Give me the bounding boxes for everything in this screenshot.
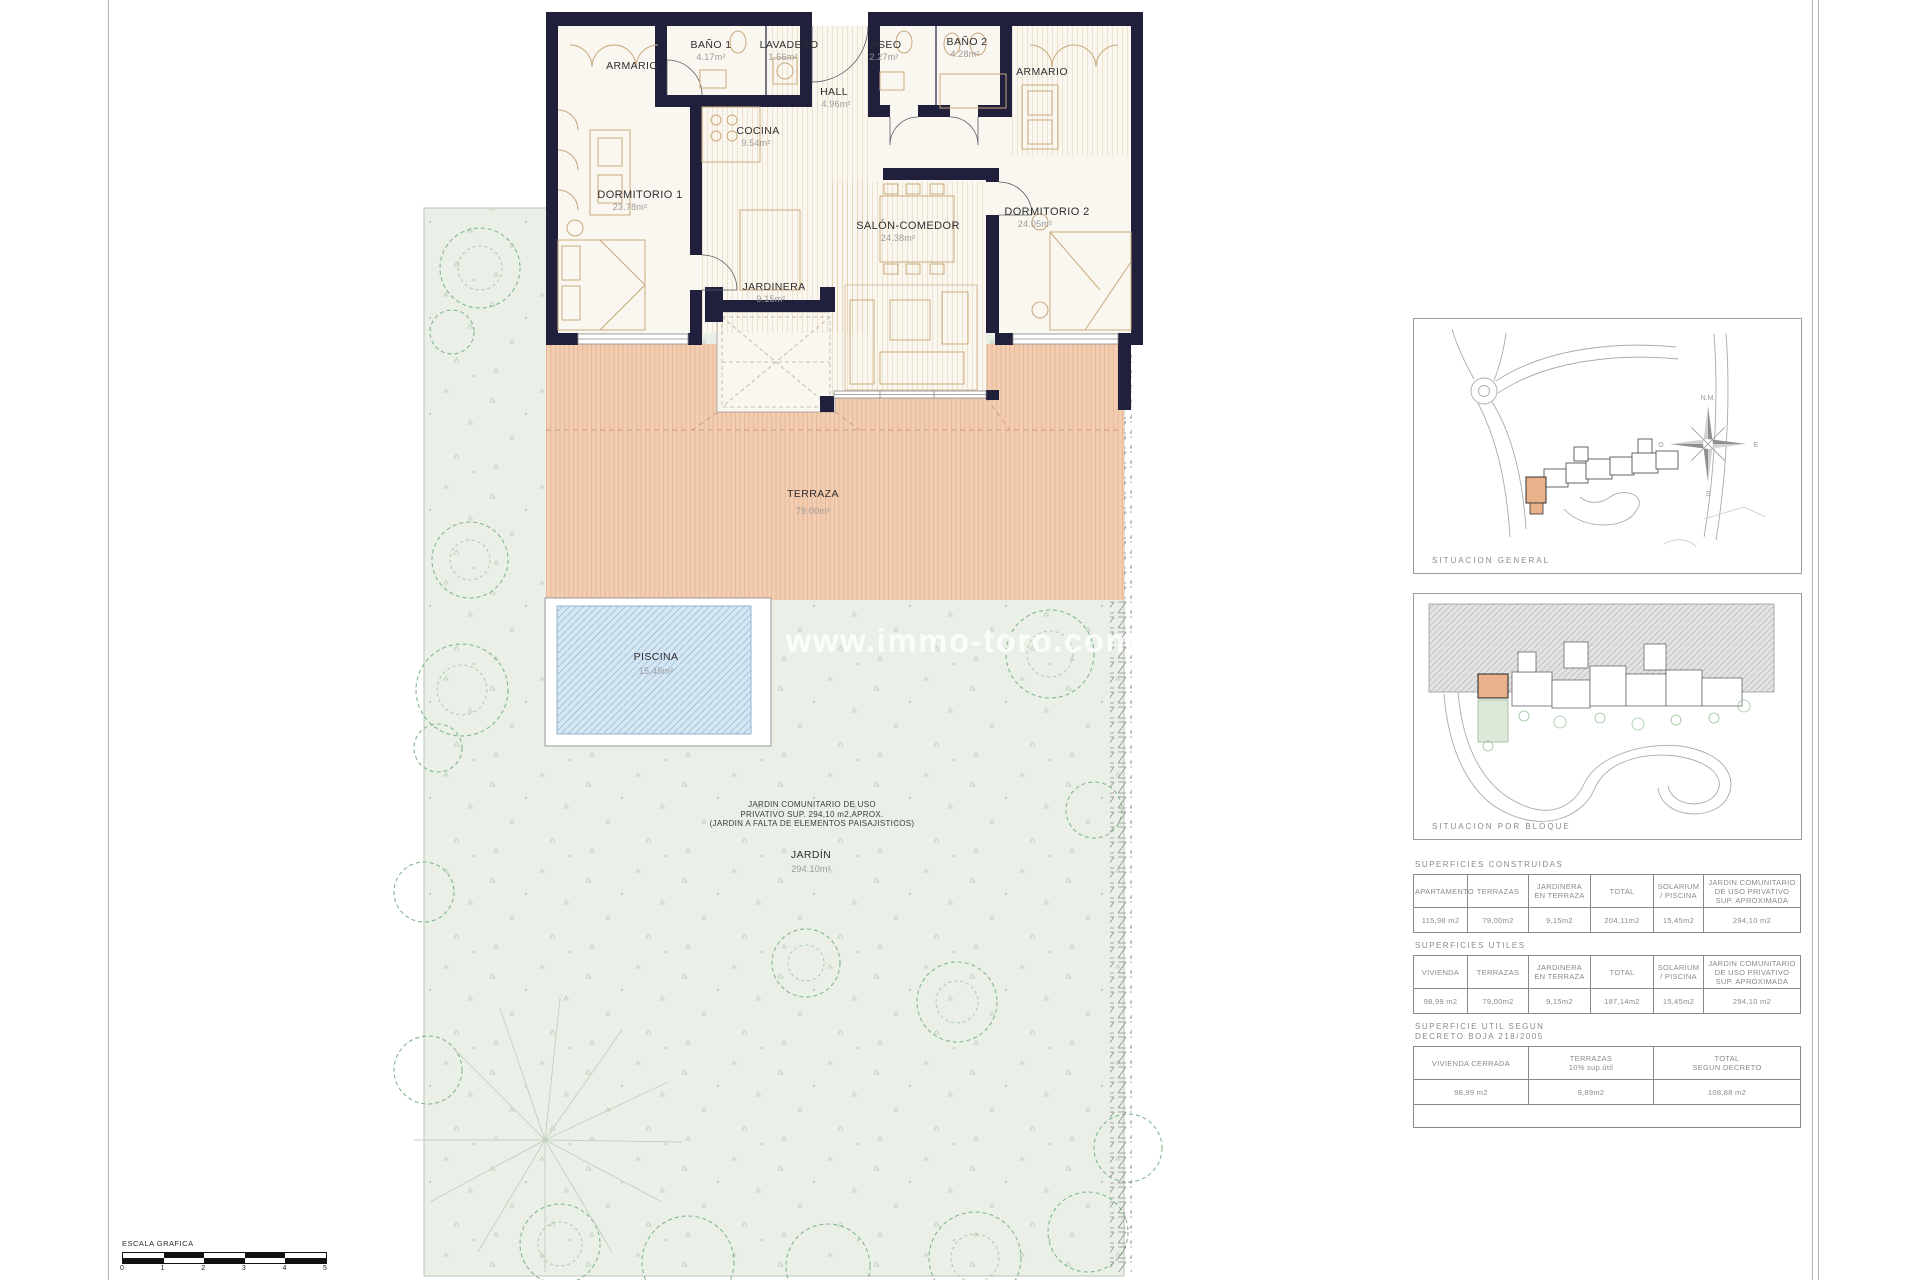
map-general-caption: SITUACION GENERAL (1432, 556, 1550, 565)
map-block-caption: SITUACION POR BLOQUE (1432, 822, 1571, 831)
compass-rose-icon (1670, 406, 1746, 482)
map-situacion-por-bloque: SITUACION POR BLOQUE (1413, 593, 1802, 840)
table-superficies-utiles: VIVIENDA TERRAZAS JARDINERA EN TERRAZA T… (1413, 955, 1801, 1014)
table1-header: JARDIN COMUNITARIO DE USO PRIVATIVO SUP.… (1704, 875, 1801, 908)
scale-tick: 2 (201, 1265, 205, 1272)
map-situacion-general: N.M. E S O SITUACION GENERAL (1413, 318, 1802, 574)
room-label-dormitorio1: DORMITORIO 1 (597, 189, 682, 201)
table2-header: SOLARIUM / PISCINA (1654, 956, 1704, 989)
graphic-scale: ESCALA GRAFICA 0 1 2 3 4 5 (122, 1252, 327, 1264)
table3-header: TOTAL SEGUN DECRETO (1654, 1047, 1801, 1080)
table1-header: JARDINERA EN TERRAZA (1529, 875, 1591, 908)
table2-header: JARDINERA EN TERRAZA (1529, 956, 1591, 989)
table1-header: APARTAMENTO (1414, 875, 1468, 908)
table2-header: TOTAL (1591, 956, 1654, 989)
surface-tables: SUPERFICIES CONSTRUIDAS APARTAMENTO TERR… (1413, 852, 1800, 1128)
garden-note-line2: PRIVATIVO SUP. 294,10 m2,APROX. (710, 810, 915, 820)
highlighted-unit (1526, 477, 1546, 514)
table2-value: 98,99 m2 (1414, 989, 1468, 1014)
room-area-terraza: 79.00m² (796, 506, 830, 516)
garden-note-line3: (JARDIN A FALTA DE ELEMENTOS PAISAJISTIC… (710, 819, 915, 829)
room-label-jardin: JARDÍN (791, 849, 831, 861)
room-area-jardinera: 9.15m² (756, 294, 785, 304)
highlighted-unit (1478, 674, 1508, 698)
room-area-dormitorio2: 24.05m² (1018, 219, 1052, 229)
table3-value: 108,88 m2 (1654, 1080, 1801, 1105)
room-label-lavadero: LAVADERO (760, 39, 819, 51)
table1-header: SOLARIUM / PISCINA (1654, 875, 1704, 908)
table1-value: 9,15m2 (1529, 908, 1591, 933)
compass-south-label: S (1706, 491, 1711, 498)
scale-tick: 0 (120, 1265, 124, 1272)
table2-value: 187,14m2 (1591, 989, 1654, 1014)
table-superficies-construidas: APARTAMENTO TERRAZAS JARDINERA EN TERRAZ… (1413, 874, 1801, 933)
table3-value: 9,89m2 (1529, 1080, 1654, 1105)
scale-tick: 4 (282, 1265, 286, 1272)
compass-east-label: E (1754, 442, 1759, 449)
table1-value: 115,98 m2 (1414, 908, 1468, 933)
scale-tick: 1 (161, 1265, 165, 1272)
room-label-armario-right: ARMARIO (1016, 66, 1068, 78)
table1-header: TOTAL (1591, 875, 1654, 908)
situacion-general-drawing: N.M. E S O (1414, 319, 1801, 573)
scale-bar-icon (122, 1252, 327, 1264)
table1-value: 204,11m2 (1591, 908, 1654, 933)
table2-title: SUPERFICIES UTILES (1415, 941, 1800, 951)
table2-header: TERRAZAS (1468, 956, 1529, 989)
room-area-bano2: 4.28m² (950, 49, 979, 59)
room-label-aseo: ASEO (871, 39, 902, 51)
table1-value: 15,45m2 (1654, 908, 1704, 933)
highlighted-garden (1478, 700, 1508, 742)
room-label-armario-left: ARMARIO (606, 60, 658, 72)
room-label-bano2: BAÑO 2 (947, 36, 988, 48)
table2-header: VIVIENDA (1414, 956, 1468, 989)
table2-value: 294,10 m2 (1704, 989, 1801, 1014)
table2-value: 79,00m2 (1468, 989, 1529, 1014)
situacion-bloque-drawing (1414, 594, 1801, 839)
room-area-aseo: 2.27m² (869, 52, 898, 62)
table3-empty-row (1414, 1105, 1801, 1128)
scale-caption: ESCALA GRAFICA (122, 1239, 194, 1248)
drawing-sheet: ARMARIO BAÑO 1 4.17m² LAVADERO 1.56m² AS… (0, 0, 1920, 1280)
table1-value: 294,10 m2 (1704, 908, 1801, 933)
table3-title: SUPERFICIE UTIL SEGUN DECRETO BOJA 218/2… (1415, 1022, 1800, 1042)
room-label-salon: SALÓN-COMEDOR (856, 220, 960, 232)
room-label-piscina: PISCINA (634, 651, 679, 663)
room-label-terraza: TERRAZA (787, 488, 839, 500)
table2-header: JARDIN COMUNITARIO DE USO PRIVATIVO SUP.… (1704, 956, 1801, 989)
room-label-jardinera: JARDINERA (742, 281, 805, 293)
watermark: www.immo-toro.com (786, 622, 1137, 660)
room-area-bano1: 4.17m² (696, 52, 725, 62)
table-superficie-util-decreto: VIVIENDA CERRADA TERRAZAS 10% sup.útil T… (1413, 1046, 1801, 1128)
compass-north-label: N.M. (1701, 395, 1716, 402)
room-label-hall: HALL (820, 86, 848, 98)
table1-title: SUPERFICIES CONSTRUIDAS (1415, 860, 1800, 870)
table1-value: 79,00m2 (1468, 908, 1529, 933)
table3-value: 98,99 m2 (1414, 1080, 1529, 1105)
room-area-dormitorio1: 23.78m² (613, 202, 647, 212)
room-area-hall: 4.96m² (821, 99, 850, 109)
scale-tick: 5 (323, 1265, 327, 1272)
room-area-cocina: 9.54m² (741, 138, 770, 148)
room-area-lavadero: 1.56m² (768, 52, 797, 62)
room-area-salon: 24.38m² (881, 233, 915, 243)
garden-note: JARDIN COMUNITARIO DE USO PRIVATIVO SUP.… (710, 800, 915, 829)
compass-west-label: O (1658, 442, 1664, 449)
table2-value: 9,15m2 (1529, 989, 1591, 1014)
room-area-piscina: 15.45m² (639, 666, 673, 676)
table1-header: TERRAZAS (1468, 875, 1529, 908)
room-label-cocina: COCINA (736, 125, 779, 137)
room-label-dormitorio2: DORMITORIO 2 (1004, 206, 1089, 218)
scale-tick: 3 (242, 1265, 246, 1272)
table3-header: VIVIENDA CERRADA (1414, 1047, 1529, 1080)
garden-note-line1: JARDIN COMUNITARIO DE USO (710, 800, 915, 810)
room-area-jardin: 294.10m² (791, 864, 831, 874)
room-label-bano1: BAÑO 1 (691, 39, 732, 51)
table2-value: 15,45m2 (1654, 989, 1704, 1014)
table3-header: TERRAZAS 10% sup.útil (1529, 1047, 1654, 1080)
